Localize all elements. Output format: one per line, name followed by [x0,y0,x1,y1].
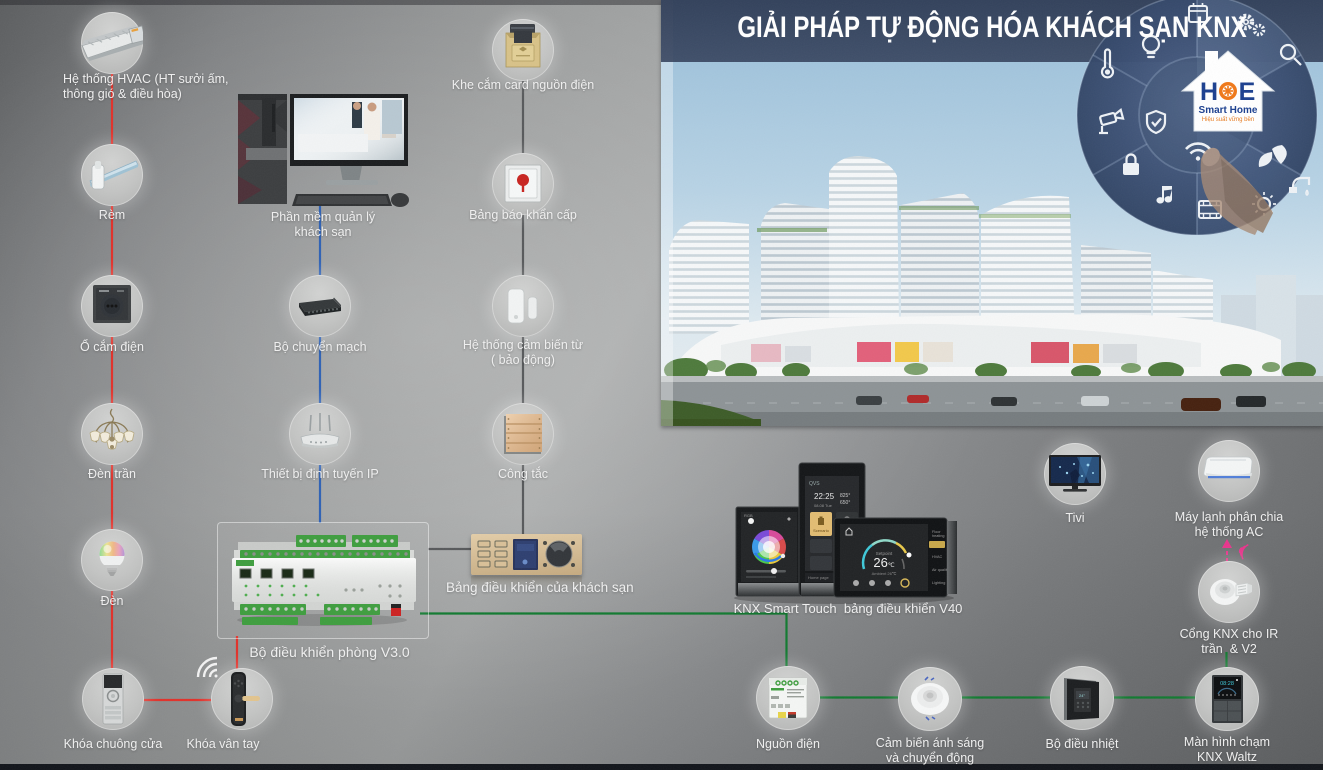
svg-text:Lighting: Lighting [932,581,945,585]
svg-text:650°: 650° [840,500,850,506]
svg-text:QVS: QVS [809,481,820,487]
svg-text:Hiệu suất vững bền: Hiệu suất vững bền [1202,117,1254,123]
svg-text:825°: 825° [840,493,850,499]
svg-text:24°: 24° [1079,693,1085,698]
svg-text:RGB: RGB [744,513,753,518]
svg-text:Ambient 26℃: Ambient 26℃ [872,571,897,576]
svg-text:E: E [1239,78,1256,106]
svg-text:Scenario: Scenario [813,528,830,533]
svg-text:08.08 Tue: 08.08 Tue [814,503,833,508]
svg-text:Smart Home: Smart Home [1199,105,1258,116]
svg-text:22:25: 22:25 [814,492,835,501]
svg-text:08:28: 08:28 [1220,681,1234,687]
svg-text:H: H [1200,78,1218,106]
svg-text:Home page: Home page [808,575,829,580]
svg-text:HVAC: HVAC [932,555,943,559]
svg-text:heating: heating [932,534,944,538]
svg-text:Air quality: Air quality [932,568,949,572]
